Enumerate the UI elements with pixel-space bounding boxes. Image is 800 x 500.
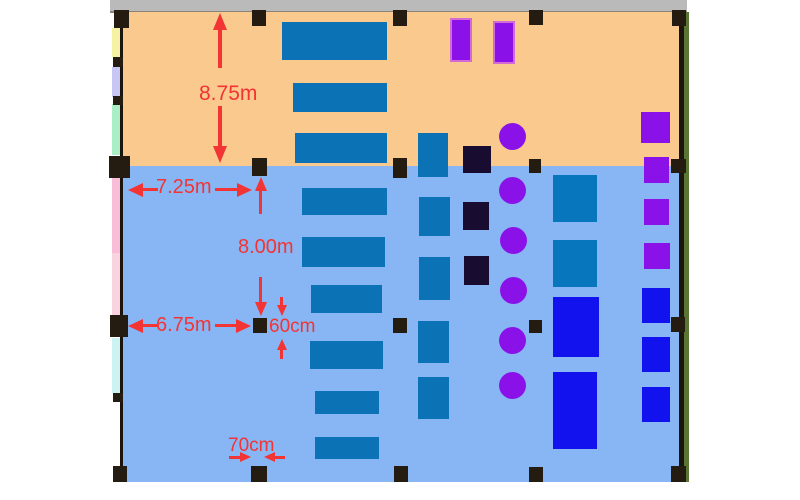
chair-circle: [499, 372, 526, 399]
dimension-label: 60cm: [269, 317, 315, 336]
column-marker: [109, 156, 130, 178]
column-marker: [393, 158, 407, 178]
wall-tick: [113, 96, 123, 105]
column-marker: [529, 467, 543, 482]
storage-navy-square: [463, 146, 491, 173]
column-marker: [252, 158, 267, 176]
desk-rect: [293, 83, 387, 112]
dimension-shaft: [259, 189, 262, 214]
desk-rect: [295, 133, 387, 163]
table-square: [553, 240, 597, 287]
room-strip-mint: [112, 104, 120, 155]
shelf-purple-square: [641, 112, 670, 143]
column-marker: [671, 466, 686, 482]
equipment-square: [642, 387, 670, 422]
column-marker: [672, 10, 686, 26]
chair-circle: [499, 327, 526, 354]
dimension-arrow-right: [236, 319, 251, 333]
shelf-purple-square: [644, 243, 670, 269]
column-marker: [393, 10, 407, 26]
room-strip-yellow: [112, 28, 120, 57]
room-strip-pink: [112, 177, 120, 253]
floor-plan-canvas: 8.75m 7.25m 8.00m 6.75m 60cm 70cm: [0, 0, 800, 500]
dimension-shaft: [218, 106, 222, 147]
dimension-arrow-right: [237, 183, 252, 197]
cabinet-rect: [418, 377, 449, 419]
chair-circle: [500, 277, 527, 304]
room-strip-cyan: [112, 338, 120, 393]
room-strip-lavender: [112, 67, 120, 97]
partition-purple-rect: [493, 21, 515, 64]
equipment-square: [642, 337, 670, 372]
column-marker: [253, 318, 267, 333]
partition-purple-rect: [450, 18, 472, 62]
desk-rect: [310, 341, 383, 369]
dimension-shaft: [259, 277, 262, 302]
chair-circle: [499, 123, 526, 150]
storage-navy-square: [463, 202, 489, 230]
chair-circle: [500, 227, 527, 254]
dimension-shaft: [280, 349, 283, 359]
dimension-arrow-down: [277, 305, 287, 316]
column-marker: [529, 159, 541, 173]
dimension-arrow-down: [255, 302, 267, 316]
dimension-shaft: [218, 28, 222, 68]
dimension-arrow-down: [213, 146, 227, 163]
dimension-label: 8.00m: [238, 237, 294, 257]
desk-rect: [315, 391, 379, 414]
equipment-rect: [553, 297, 599, 357]
column-marker: [671, 159, 686, 173]
cabinet-rect: [419, 197, 450, 236]
dimension-arrow-right: [240, 452, 251, 462]
dimension-label: 7.25m: [156, 177, 212, 197]
column-marker: [113, 466, 127, 482]
shapes-layer: [0, 0, 800, 500]
column-marker: [110, 315, 128, 337]
room-strip-pink-light: [112, 253, 120, 315]
table-square: [553, 175, 597, 222]
column-marker: [252, 10, 266, 26]
dimension-shaft: [274, 456, 285, 459]
equipment-rect: [553, 372, 597, 449]
equipment-square: [642, 288, 670, 323]
storage-navy-square: [464, 256, 489, 285]
wall-tick: [113, 57, 123, 67]
column-marker: [671, 317, 685, 332]
chair-circle: [499, 177, 526, 204]
column-marker: [393, 318, 407, 333]
column-marker: [529, 10, 543, 25]
desk-rect: [302, 237, 385, 267]
dimension-label: 8.75m: [199, 83, 257, 104]
column-marker: [251, 466, 267, 482]
shelf-purple-square: [644, 157, 669, 183]
column-marker: [394, 466, 408, 482]
dimension-shaft: [215, 188, 239, 191]
column-marker: [529, 320, 542, 333]
cabinet-rect: [419, 257, 450, 300]
column-marker: [114, 10, 129, 28]
cabinet-rect: [418, 321, 449, 363]
wall-tick: [113, 393, 123, 402]
desk-rect: [315, 437, 379, 459]
dimension-label: 6.75m: [156, 315, 212, 335]
shelf-purple-square: [644, 199, 669, 225]
desk-rect: [302, 188, 387, 215]
desk-rect: [282, 22, 387, 60]
desk-rect: [311, 285, 382, 313]
cabinet-rect: [418, 133, 448, 177]
